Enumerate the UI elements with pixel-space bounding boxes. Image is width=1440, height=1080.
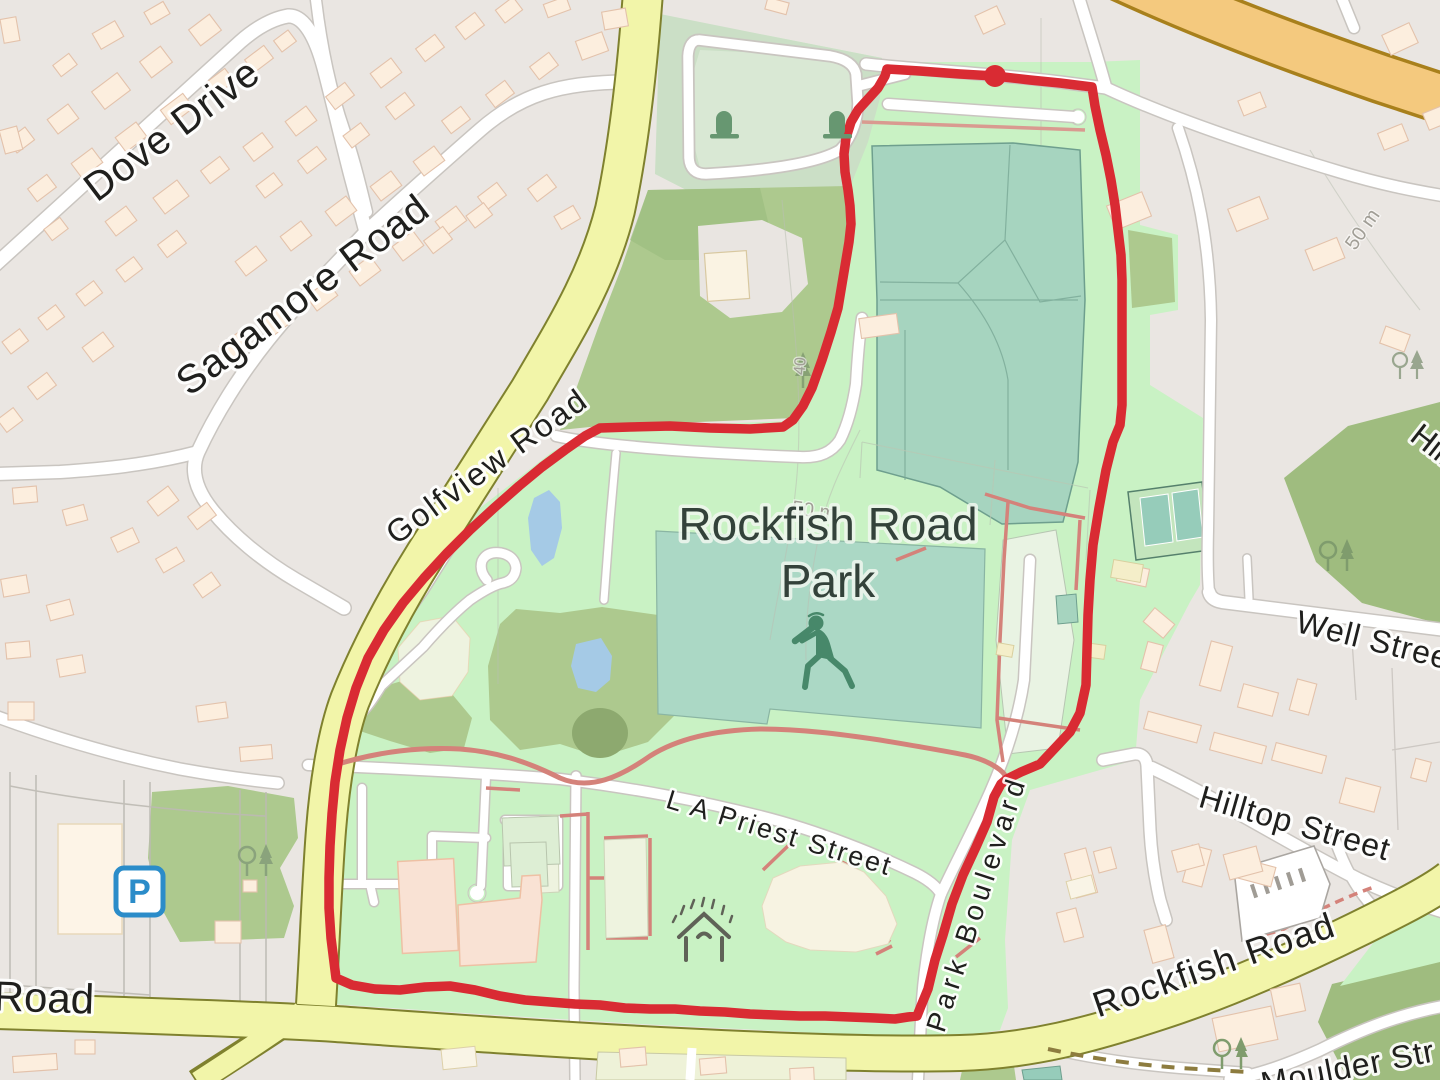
svg-text:Rockfish Road: Rockfish Road (678, 498, 977, 550)
svg-text:Park: Park (781, 555, 877, 607)
svg-text:P: P (128, 873, 151, 911)
svg-text:Road: Road (0, 972, 95, 1022)
svg-text:40: 40 (791, 356, 809, 375)
